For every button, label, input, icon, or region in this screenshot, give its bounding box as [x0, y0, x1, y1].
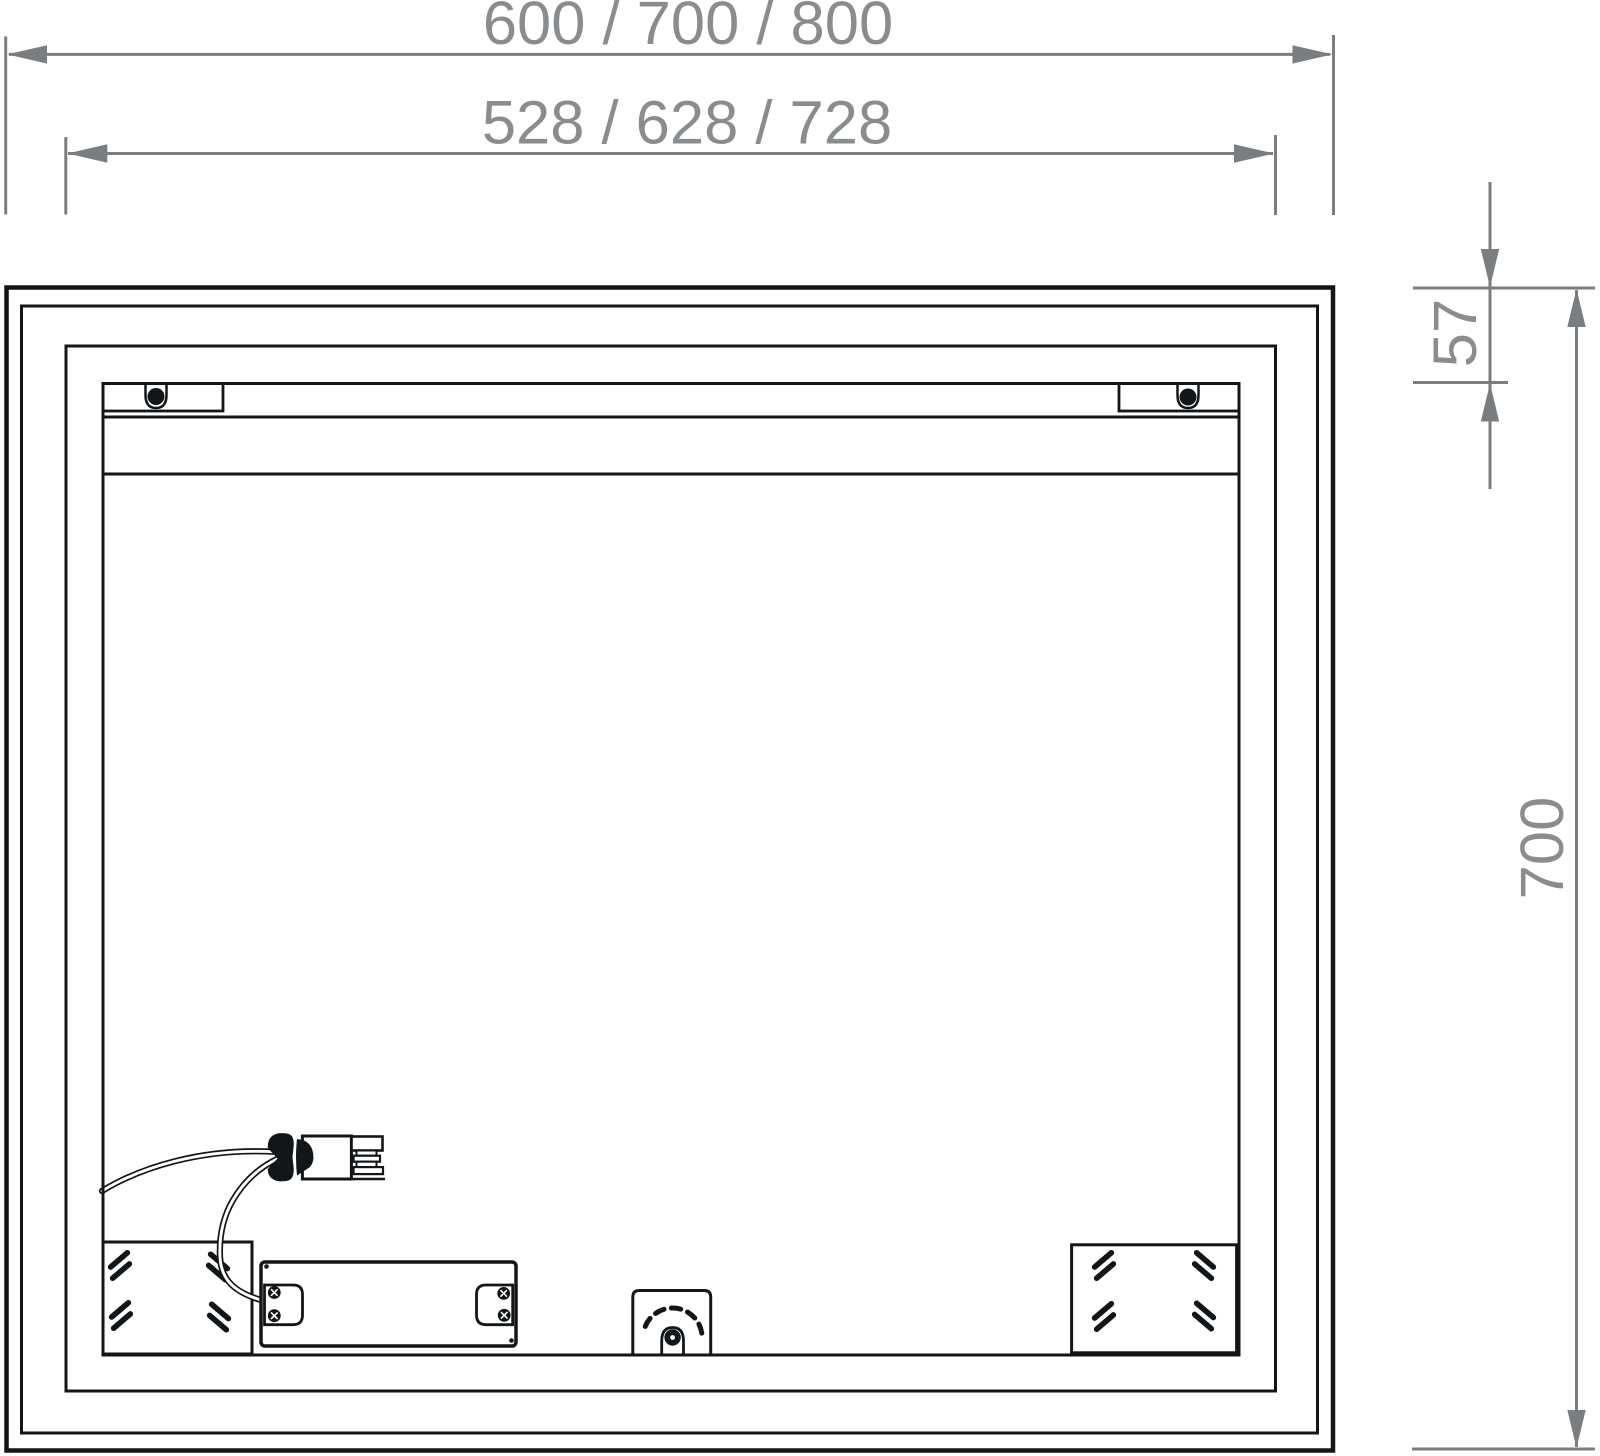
svg-text:600 / 700 / 800: 600 / 700 / 800: [483, 0, 893, 58]
svg-text:528 / 628 / 728: 528 / 628 / 728: [482, 89, 892, 158]
svg-text:700: 700: [1508, 797, 1577, 900]
svg-text:57: 57: [1421, 299, 1490, 367]
